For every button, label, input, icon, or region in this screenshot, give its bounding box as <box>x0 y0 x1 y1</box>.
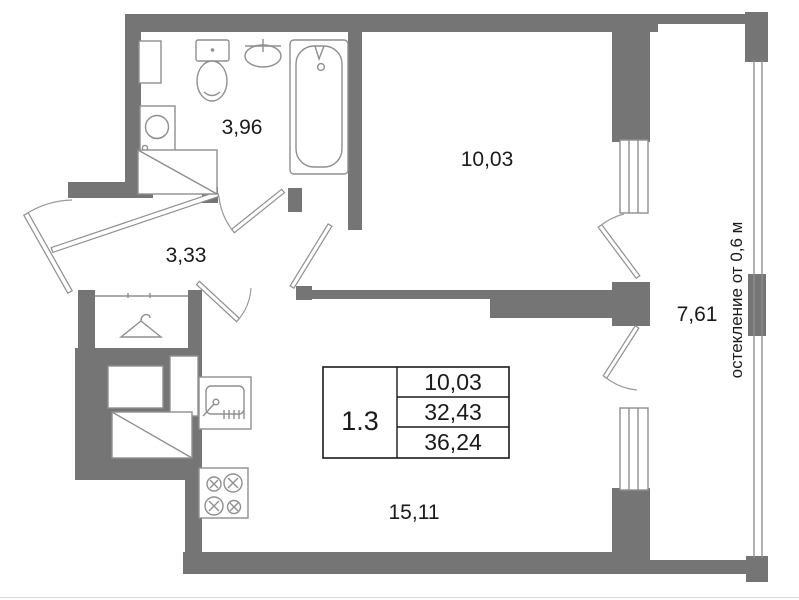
floor-plan: 1.3 10,03 32,43 36,24 3,96 10,03 3,33 15… <box>0 0 799 600</box>
living-door-swing <box>238 288 251 320</box>
kitchen-faucet-head <box>213 399 219 405</box>
wall-balcony-bottom <box>613 560 753 574</box>
balcony-glazing-note: остекление от 0,6 м <box>727 222 746 379</box>
entrance-door-leaf <box>24 213 72 293</box>
bathroom-wall-niche <box>139 41 161 83</box>
wall-wardrobe-right <box>188 290 202 350</box>
page-bottom-edge <box>0 597 799 598</box>
wall-door-jamb-right <box>288 188 302 212</box>
bathroom-door-leaf <box>232 189 285 232</box>
living-window <box>620 408 648 490</box>
wall-niche-kitchen <box>170 356 198 416</box>
living-door-leaf <box>197 281 240 321</box>
wall-bedroom-west <box>348 14 362 230</box>
bedroom-balcony-door-swing <box>600 214 624 226</box>
table-row-value: 36,24 <box>424 429 482 455</box>
wall-top <box>125 14 658 32</box>
unit-number: 1.3 <box>341 406 379 436</box>
hanger-hook <box>141 315 150 321</box>
floor-plan-drawing: 1.3 10,03 32,43 36,24 3,96 10,03 3,33 15… <box>0 0 799 600</box>
entrance-door-swing <box>26 200 72 214</box>
wall-wardrobe-left <box>78 290 95 350</box>
table-row-value: 10,03 <box>424 369 482 395</box>
shaft-box <box>108 366 163 408</box>
wall-pillar-right-top <box>612 14 650 142</box>
kitchen-fixtures <box>199 377 251 518</box>
wall-living-top-thick <box>490 290 612 318</box>
bathtub-drain <box>318 64 325 71</box>
wardrobe <box>95 293 188 337</box>
room-labels: 3,96 10,03 3,33 15,11 7,61 остекление от… <box>166 116 746 524</box>
wall-balcony-top <box>650 14 750 24</box>
bedroom-window <box>620 140 648 213</box>
living-balcony-door-swing <box>605 377 637 390</box>
bedroom-balcony-door-leaf <box>598 225 640 279</box>
info-table: 1.3 10,03 32,43 36,24 <box>323 367 509 458</box>
bedroom-area-label: 10,03 <box>461 148 514 171</box>
hallway-area-label: 3,33 <box>166 244 207 267</box>
toilet-button <box>211 48 215 52</box>
living-area-label: 15,11 <box>389 501 440 524</box>
wall-corner-top-right <box>745 12 768 62</box>
wall-corner-bottom-right <box>746 556 768 582</box>
living-balcony-door-leaf <box>603 326 639 378</box>
kitchen-sink-basin <box>206 386 244 414</box>
walls <box>68 12 768 582</box>
balcony-area-label: 7,61 <box>677 303 718 326</box>
table-row-value: 32,43 <box>424 399 482 425</box>
bedroom-door-leaf <box>290 224 332 288</box>
bathroom-door-swing <box>219 197 233 231</box>
wall-pillar-right-mid <box>612 282 650 326</box>
wall-bottom <box>183 552 615 574</box>
wall-pillar-right-bottom <box>612 488 650 568</box>
wall-glazing-mid-block <box>748 274 766 336</box>
hanger-icon <box>121 321 161 337</box>
bathroom-area-label: 3,96 <box>222 116 263 139</box>
